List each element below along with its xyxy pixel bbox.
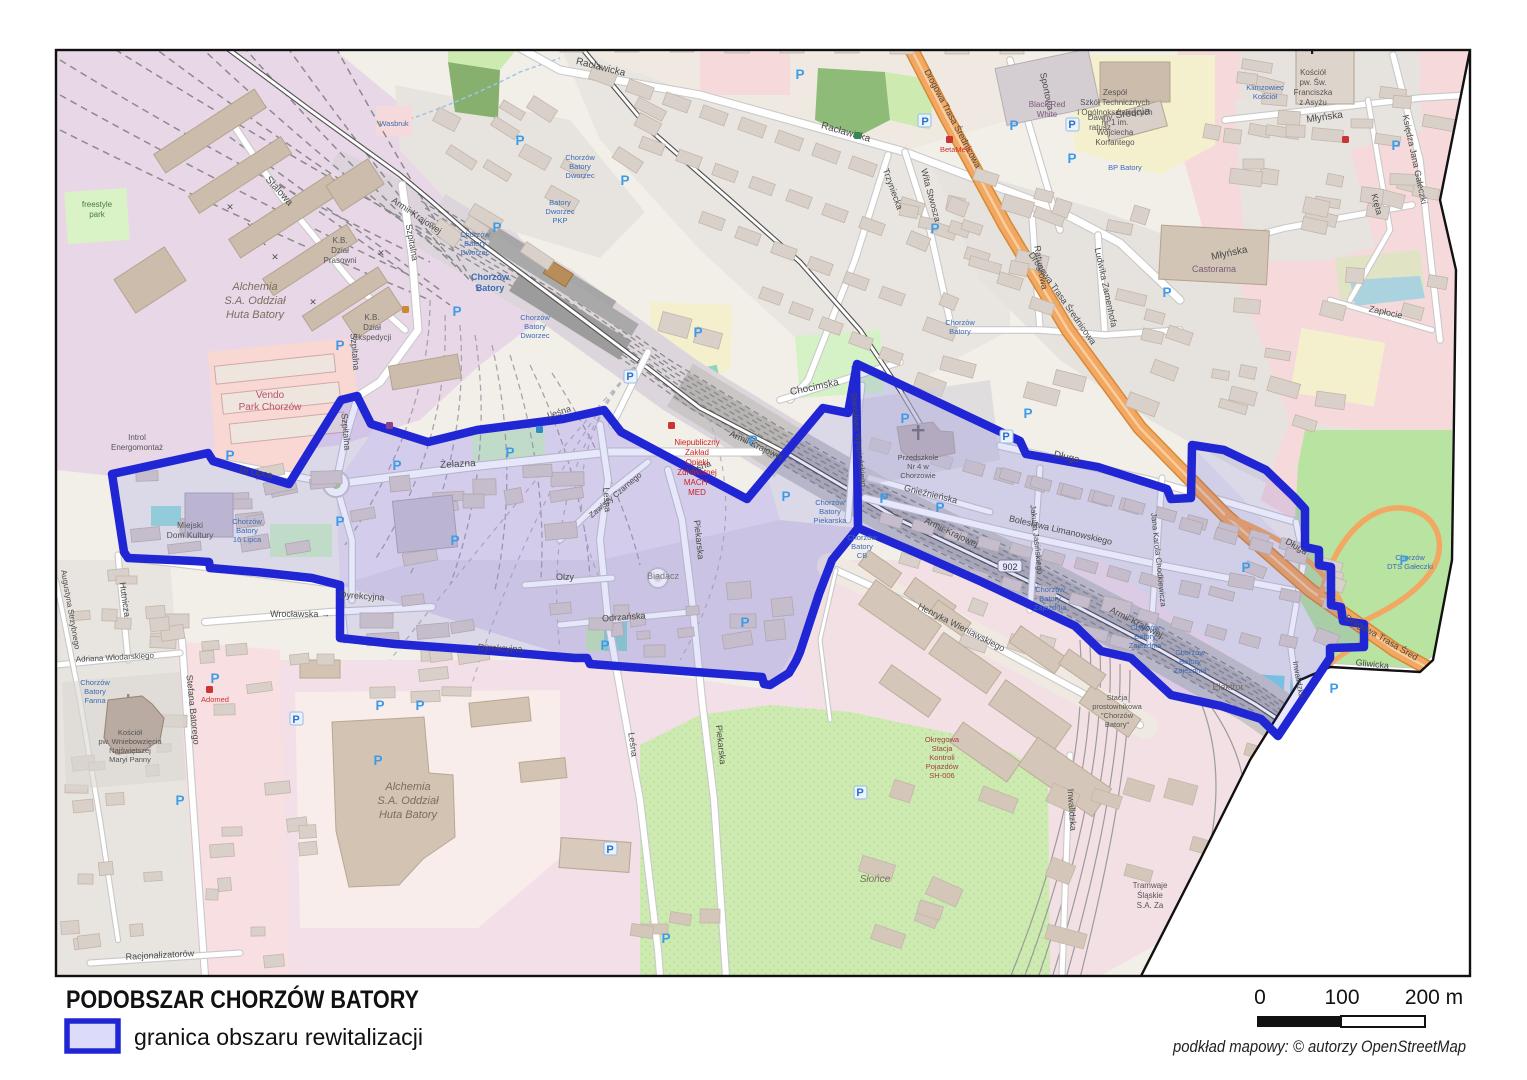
- svg-text:Chorzów: Chorzów: [80, 678, 110, 687]
- svg-text:P: P: [781, 489, 790, 504]
- svg-text:P: P: [505, 445, 514, 460]
- svg-text:P: P: [600, 638, 609, 653]
- svg-text:Stacja: Stacja: [932, 744, 954, 753]
- svg-text:Najświętszej: Najświętszej: [109, 746, 151, 755]
- svg-text:Batory: Batory: [549, 198, 571, 207]
- svg-text:K.B.: K.B.: [364, 313, 379, 322]
- svg-text:Chorzów: Chorzów: [1130, 623, 1160, 632]
- svg-text:Kościół: Kościół: [1253, 92, 1278, 101]
- svg-text:pw. Św.: pw. Św.: [1299, 78, 1326, 87]
- svg-text:P: P: [1399, 553, 1408, 568]
- svg-text:Introl: Introl: [128, 433, 146, 442]
- svg-text:Biadacz: Biadacz: [647, 571, 680, 581]
- svg-text:Dworzec: Dworzec: [565, 171, 594, 180]
- svg-text:podkład mapowy: © autorzy Open: podkład mapowy: © autorzy OpenStreetMap: [1172, 1037, 1466, 1056]
- svg-text:P: P: [1067, 151, 1076, 166]
- svg-text:Batory: Batory: [819, 507, 841, 516]
- svg-text:Chorzów: Chorzów: [1175, 648, 1205, 657]
- svg-text:Korfantego: Korfantego: [1095, 138, 1135, 147]
- svg-text:P: P: [1068, 119, 1075, 131]
- svg-text:prostownikowa: prostownikowa: [1092, 702, 1142, 711]
- svg-text:✕: ✕: [377, 248, 385, 258]
- svg-text:Chorzów: Chorzów: [815, 498, 845, 507]
- svg-text:Dom Kultury: Dom Kultury: [167, 530, 215, 540]
- svg-text:Batory: Batory: [524, 322, 546, 331]
- svg-text:Batory: Batory: [236, 526, 258, 535]
- svg-text:P: P: [450, 533, 459, 548]
- svg-text:Niepubliczny: Niepubliczny: [674, 438, 719, 447]
- svg-text:Dworzec: Dworzec: [460, 248, 489, 257]
- svg-text:Black Red: Black Red: [1029, 100, 1065, 109]
- svg-text:Batory: Batory: [851, 542, 873, 551]
- svg-text:P: P: [740, 615, 749, 630]
- svg-text:Zajezdnia: Zajezdnia: [1034, 603, 1067, 612]
- svg-text:Zajezdnia: Zajezdnia: [1129, 641, 1162, 650]
- svg-text:P: P: [1329, 681, 1338, 696]
- svg-text:Vendo: Vendo: [256, 390, 285, 401]
- svg-text:Batory: Batory: [1179, 657, 1201, 666]
- svg-text:Dział: Dział: [363, 323, 381, 332]
- svg-text:Zajezdnia: Zajezdnia: [1174, 666, 1207, 675]
- svg-text:Chorzów: Chorzów: [520, 313, 550, 322]
- svg-text:P: P: [292, 714, 299, 726]
- svg-text:Ekspedycji: Ekspedycji: [353, 333, 391, 342]
- svg-text:"Chorzów: "Chorzów: [1101, 711, 1134, 720]
- svg-text:SH-006: SH-006: [929, 771, 954, 780]
- svg-text:CB: CB: [857, 551, 867, 560]
- svg-text:Chorzów: Chorzów: [471, 272, 510, 282]
- svg-text:Dworzec: Dworzec: [545, 207, 574, 216]
- svg-text:Stacja: Stacja: [1107, 693, 1129, 702]
- svg-text:Chorzów: Chorzów: [1035, 585, 1065, 594]
- svg-text:Batory: Batory: [464, 239, 486, 248]
- svg-text:Batory: Batory: [476, 283, 505, 293]
- svg-text:Zakład: Zakład: [685, 448, 709, 457]
- svg-text:P: P: [335, 514, 344, 529]
- svg-text:P: P: [175, 793, 184, 808]
- svg-text:MED: MED: [688, 488, 706, 497]
- svg-text:P: P: [335, 338, 344, 353]
- svg-text:P: P: [879, 491, 888, 506]
- svg-text:Opieki: Opieki: [686, 458, 709, 467]
- svg-text:S.A. Oddział: S.A. Oddział: [224, 295, 286, 307]
- svg-text:granica obszaru rewitalizacji: granica obszaru rewitalizacji: [134, 1024, 423, 1050]
- svg-text:16 Lipca: 16 Lipca: [233, 535, 262, 544]
- svg-text:Chorzów: Chorzów: [945, 318, 975, 327]
- svg-text:P: P: [515, 133, 524, 148]
- svg-text:P: P: [373, 753, 382, 768]
- svg-text:P: P: [1241, 560, 1250, 575]
- svg-text:Dawny: Dawny: [1088, 113, 1112, 122]
- svg-text:200 m: 200 m: [1405, 986, 1463, 1009]
- svg-text:P: P: [375, 698, 384, 713]
- svg-text:BP Batory: BP Batory: [1108, 163, 1142, 172]
- svg-text:Chorzów: Chorzów: [460, 230, 490, 239]
- svg-text:Wasbruk: Wasbruk: [379, 119, 409, 128]
- svg-text:Miejski: Miejski: [177, 520, 203, 530]
- svg-text:Szkół Technicznych: Szkół Technicznych: [1080, 98, 1150, 107]
- svg-text:S.A. Za: S.A. Za: [1137, 901, 1164, 910]
- svg-text:P: P: [210, 671, 219, 686]
- svg-text:Alchemia: Alchemia: [231, 281, 277, 293]
- svg-text:Alchemia: Alchemia: [384, 781, 430, 793]
- svg-text:P: P: [748, 433, 757, 448]
- svg-text:Kontroli: Kontroli: [929, 753, 955, 762]
- svg-text:P: P: [620, 173, 629, 188]
- svg-text:Zespół: Zespół: [1103, 88, 1127, 97]
- svg-text:Elektror: Elektror: [1212, 682, 1243, 692]
- svg-text:Piekarska: Piekarska: [814, 516, 848, 525]
- svg-text:Wrocławska →: Wrocławska →: [270, 609, 330, 619]
- svg-text:Kościół: Kościół: [1300, 68, 1326, 77]
- svg-text:P: P: [856, 787, 863, 799]
- svg-text:Chorzów: Chorzów: [847, 533, 877, 542]
- svg-text:P: P: [693, 325, 702, 340]
- svg-text:Batory: Batory: [84, 687, 106, 696]
- svg-text:Pojazdów: Pojazdów: [926, 762, 959, 771]
- svg-text:Słońce: Słońce: [860, 874, 891, 885]
- svg-text:White: White: [1037, 110, 1058, 119]
- svg-text:Dział: Dział: [331, 246, 349, 255]
- svg-text:100: 100: [1324, 986, 1359, 1009]
- svg-text:Śląskie: Śląskie: [1137, 891, 1163, 900]
- svg-text:P: P: [900, 411, 909, 426]
- svg-text:K.B.: K.B.: [332, 236, 347, 245]
- svg-text:Prasowni: Prasowni: [324, 256, 357, 265]
- svg-text:BetaMed: BetaMed: [940, 145, 970, 154]
- svg-text:P: P: [452, 304, 461, 319]
- svg-text:P: P: [1023, 406, 1032, 421]
- svg-text:P: P: [492, 220, 501, 235]
- svg-text:Batory": Batory": [1105, 720, 1130, 729]
- svg-text:Chorzów: Chorzów: [232, 517, 262, 526]
- svg-text:P: P: [225, 448, 234, 463]
- svg-text:P: P: [606, 844, 613, 856]
- svg-text:Park Chorzów: Park Chorzów: [239, 402, 303, 413]
- svg-text:Energomontaż: Energomontaż: [111, 443, 163, 452]
- svg-text:P: P: [930, 221, 939, 236]
- svg-text:PKP: PKP: [552, 216, 567, 225]
- svg-text:Olzy: Olzy: [556, 572, 575, 582]
- svg-text:Franciszka: Franciszka: [1294, 88, 1333, 97]
- svg-text:Tramwaje: Tramwaje: [1133, 881, 1168, 890]
- svg-text:Maryi Panny: Maryi Panny: [109, 755, 151, 764]
- svg-text:Nr 4 w: Nr 4 w: [907, 462, 929, 471]
- svg-text:Adomed: Adomed: [201, 695, 229, 704]
- svg-text:ratusz: ratusz: [1089, 123, 1111, 132]
- svg-text:Okręgowa: Okręgowa: [925, 735, 960, 744]
- svg-text:P: P: [795, 67, 804, 82]
- svg-text:P: P: [661, 931, 670, 946]
- svg-text:Zdrowotnej: Zdrowotnej: [677, 468, 717, 477]
- svg-text:Batory: Batory: [569, 162, 591, 171]
- svg-text:MACH-: MACH-: [684, 478, 711, 487]
- svg-text:P: P: [392, 458, 401, 473]
- svg-text:park: park: [89, 210, 106, 219]
- svg-text:0: 0: [1254, 986, 1266, 1009]
- svg-text:P: P: [1162, 285, 1171, 300]
- svg-text:freestyle: freestyle: [82, 200, 113, 209]
- svg-text:✕: ✕: [309, 297, 317, 307]
- svg-text:Chorzów: Chorzów: [565, 153, 595, 162]
- svg-text:z Asyżu: z Asyżu: [1299, 98, 1327, 107]
- svg-text:Klimzowiec: Klimzowiec: [1246, 83, 1284, 92]
- svg-text:Kościół: Kościół: [118, 728, 143, 737]
- svg-text:P: P: [626, 371, 633, 383]
- svg-text:pw. Wniebowzięcia: pw. Wniebowzięcia: [98, 737, 162, 746]
- svg-text:Przedszkole: Przedszkole: [898, 453, 939, 462]
- svg-text:P: P: [1009, 118, 1018, 133]
- svg-text:Huta Batory: Huta Batory: [379, 809, 439, 821]
- svg-text:Batory: Batory: [1134, 632, 1156, 641]
- svg-text:P: P: [1391, 138, 1400, 153]
- svg-text:Fanna: Fanna: [84, 696, 106, 705]
- svg-text:P: P: [921, 116, 928, 128]
- svg-text:P: P: [415, 698, 424, 713]
- svg-text:P: P: [1002, 431, 1009, 443]
- svg-text:Castorama: Castorama: [1192, 264, 1236, 274]
- svg-text:✕: ✕: [226, 202, 234, 212]
- svg-text:Chorzowie: Chorzowie: [900, 471, 935, 480]
- svg-text:DTS Gałeczki: DTS Gałeczki: [1387, 562, 1433, 571]
- svg-text:✕: ✕: [271, 252, 279, 262]
- svg-text:Dworzec: Dworzec: [520, 331, 549, 340]
- svg-text:P: P: [935, 500, 944, 515]
- svg-text:Batory: Batory: [949, 327, 971, 336]
- svg-text:PODOBSZAR CHORZÓW BATORY: PODOBSZAR CHORZÓW BATORY: [66, 984, 419, 1014]
- svg-text:S.A. Oddział: S.A. Oddział: [377, 795, 439, 807]
- svg-text:Batory: Batory: [1039, 594, 1061, 603]
- svg-text:Huta Batory: Huta Batory: [226, 309, 286, 321]
